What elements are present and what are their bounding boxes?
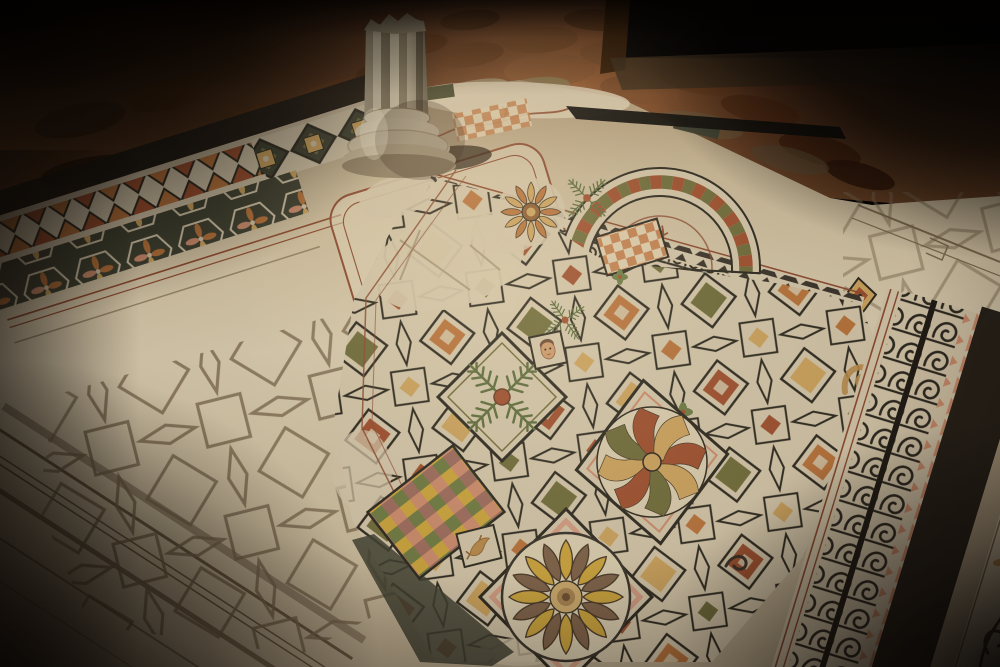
lighting-vignette xyxy=(0,0,1000,667)
mosaic-photo: Ancient Roman geometric floor mosaic in … xyxy=(0,0,1000,667)
photo-canvas xyxy=(0,0,1000,667)
shadow-bottom-right xyxy=(660,420,1000,667)
